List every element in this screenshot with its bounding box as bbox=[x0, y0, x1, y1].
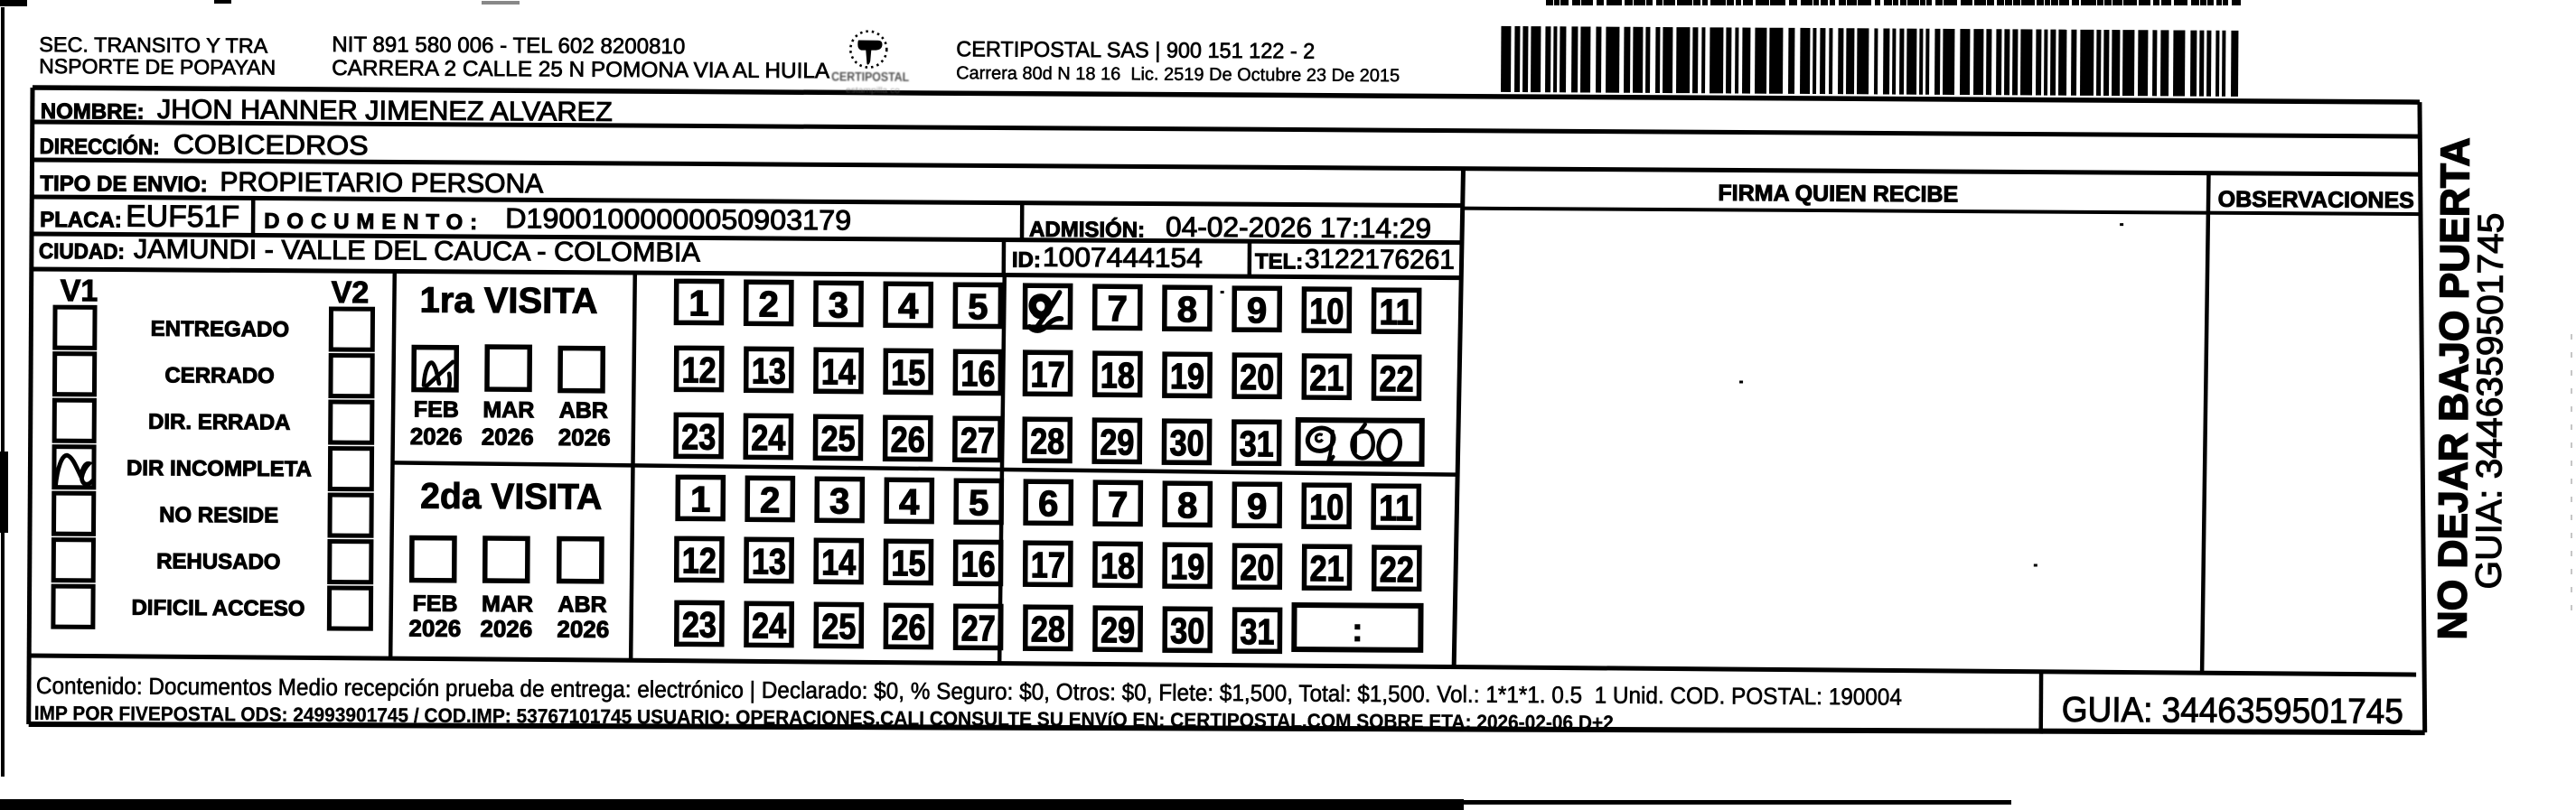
svg-text:8: 8 bbox=[1177, 290, 1198, 330]
svg-text:15: 15 bbox=[891, 353, 925, 393]
svg-text:2da VISITA: 2da VISITA bbox=[420, 477, 602, 517]
svg-text:2026: 2026 bbox=[480, 615, 532, 642]
svg-text:OBSERVACIONES: OBSERVACIONES bbox=[2218, 187, 2414, 213]
svg-text:D19001000000050903179: D19001000000050903179 bbox=[505, 202, 851, 236]
svg-text:V1: V1 bbox=[61, 274, 98, 308]
svg-text:10: 10 bbox=[1309, 488, 1344, 527]
svg-text:CIUDAD:: CIUDAD: bbox=[39, 239, 125, 265]
svg-text:7: 7 bbox=[1107, 289, 1128, 329]
svg-text:25: 25 bbox=[821, 607, 856, 647]
svg-text:2: 2 bbox=[760, 480, 781, 520]
svg-text:8: 8 bbox=[1177, 486, 1198, 526]
svg-text:MAR: MAR bbox=[482, 591, 533, 617]
svg-text:22: 22 bbox=[1380, 550, 1414, 590]
svg-text:2026: 2026 bbox=[557, 616, 609, 643]
svg-text:23: 23 bbox=[681, 417, 716, 457]
svg-text:9: 9 bbox=[1247, 291, 1268, 331]
svg-text:CERTIPOSTAL: CERTIPOSTAL bbox=[831, 69, 909, 84]
svg-text:ABR: ABR bbox=[557, 592, 606, 618]
svg-text:NSPORTE DE POPAYAN: NSPORTE DE POPAYAN bbox=[39, 54, 276, 79]
svg-text:CERTIPOSTAL SAS | 900 151 122: CERTIPOSTAL SAS | 900 151 122 - 2 bbox=[956, 37, 1315, 63]
svg-text:22: 22 bbox=[1379, 359, 1413, 399]
svg-text:19: 19 bbox=[1170, 547, 1204, 587]
svg-text:Carrera 80d N 18 16 Lic. 2519: Carrera 80d N 18 16 Lic. 2519 De Octubre… bbox=[956, 63, 1400, 86]
svg-text:29: 29 bbox=[1100, 423, 1134, 462]
svg-text:GUIA: 3446359501745: GUIA: 3446359501745 bbox=[2469, 212, 2512, 589]
svg-text:1: 1 bbox=[688, 284, 709, 323]
svg-text:NIT 891 580 006 - TEL 602 8200: NIT 891 580 006 - TEL 602 8200810 bbox=[332, 33, 685, 59]
svg-text:GUIA: 3446359501745: GUIA: 3446359501745 bbox=[2062, 691, 2403, 731]
svg-text:PROPIETARIO PERSONA: PROPIETARIO PERSONA bbox=[220, 167, 543, 199]
svg-text:31: 31 bbox=[1240, 424, 1274, 464]
svg-text:2026: 2026 bbox=[482, 424, 534, 451]
svg-text:JHON HANNER JIMENEZ ALVAREZ: JHON HANNER JIMENEZ ALVAREZ bbox=[157, 95, 613, 127]
svg-text:CARRERA 2 CALLE 25 N POMONA VI: CARRERA 2 CALLE 25 N POMONA VIA AL HUILA bbox=[332, 56, 829, 83]
svg-text:FIRMA QUIEN RECIBE: FIRMA QUIEN RECIBE bbox=[1718, 181, 1958, 208]
svg-text:16: 16 bbox=[960, 354, 995, 394]
svg-text:4: 4 bbox=[898, 286, 919, 326]
svg-text:11: 11 bbox=[1379, 293, 1413, 332]
svg-text:2026: 2026 bbox=[558, 424, 611, 451]
svg-text:25: 25 bbox=[820, 419, 855, 459]
svg-text:EUF51F: EUF51F bbox=[126, 200, 239, 235]
svg-text:2: 2 bbox=[759, 284, 780, 324]
svg-text:REHUSADO: REHUSADO bbox=[156, 549, 281, 574]
svg-text:1ra VISITA: 1ra VISITA bbox=[419, 281, 597, 321]
svg-text:5: 5 bbox=[968, 287, 988, 327]
svg-text:13: 13 bbox=[752, 542, 786, 582]
svg-text:20: 20 bbox=[1240, 548, 1274, 588]
svg-text:JAMUNDI - VALLE DEL CAUCA - CO: JAMUNDI - VALLE DEL CAUCA - COLOMBIA bbox=[134, 235, 700, 268]
svg-text:14: 14 bbox=[821, 543, 857, 582]
svg-text:2026: 2026 bbox=[408, 615, 461, 642]
svg-text:CERRADO: CERRADO bbox=[164, 363, 275, 388]
svg-text:18: 18 bbox=[1101, 546, 1135, 586]
svg-text:11: 11 bbox=[1379, 489, 1413, 528]
svg-text:DIFICIL ACCESO: DIFICIL ACCESO bbox=[131, 596, 304, 621]
svg-text:12: 12 bbox=[682, 541, 717, 581]
svg-text:PLACA:: PLACA: bbox=[40, 208, 122, 233]
svg-text:04-02-2026 17:14:29: 04-02-2026 17:14:29 bbox=[1166, 211, 1431, 245]
svg-text:30: 30 bbox=[1170, 611, 1204, 651]
svg-text:27: 27 bbox=[961, 609, 996, 648]
svg-text:30: 30 bbox=[1169, 424, 1204, 463]
svg-text:TIPO DE ENVIO:: TIPO DE ENVIO: bbox=[40, 172, 208, 197]
svg-text:NOMBRE:: NOMBRE: bbox=[41, 99, 145, 125]
svg-text:ADMISIÓN:: ADMISIÓN: bbox=[1029, 217, 1145, 243]
svg-text:DIR. ERRADA: DIR. ERRADA bbox=[148, 410, 291, 435]
svg-text:4: 4 bbox=[899, 482, 920, 522]
svg-text:ABR: ABR bbox=[559, 398, 608, 424]
svg-text:15: 15 bbox=[891, 544, 925, 583]
svg-text:13: 13 bbox=[752, 351, 786, 391]
svg-text:28: 28 bbox=[1031, 610, 1065, 649]
svg-text:3: 3 bbox=[829, 285, 849, 325]
svg-text:1007444154: 1007444154 bbox=[1043, 243, 1203, 274]
svg-text:6: 6 bbox=[1038, 484, 1059, 524]
svg-text:MAR: MAR bbox=[482, 397, 534, 423]
svg-text:29: 29 bbox=[1101, 610, 1135, 650]
svg-text:31: 31 bbox=[1240, 612, 1274, 652]
svg-text:24: 24 bbox=[751, 418, 786, 458]
svg-text:26: 26 bbox=[891, 420, 925, 460]
svg-text:14: 14 bbox=[821, 352, 857, 392]
svg-text:TEL:: TEL: bbox=[1255, 249, 1303, 274]
svg-text:17: 17 bbox=[1031, 545, 1065, 585]
svg-text:ID:: ID: bbox=[1012, 248, 1041, 273]
svg-text:5: 5 bbox=[969, 483, 989, 523]
svg-text:10: 10 bbox=[1309, 292, 1344, 331]
svg-text:FEB: FEB bbox=[412, 591, 457, 617]
svg-text:2026: 2026 bbox=[410, 423, 463, 450]
svg-text:DOCUMENTO:: DOCUMENTO: bbox=[264, 209, 477, 235]
svg-text:3122176261: 3122176261 bbox=[1305, 245, 1455, 275]
svg-text:21: 21 bbox=[1309, 358, 1344, 398]
svg-text:16: 16 bbox=[960, 545, 995, 584]
svg-text:12: 12 bbox=[681, 350, 716, 390]
svg-text:17: 17 bbox=[1030, 355, 1064, 395]
svg-text:19: 19 bbox=[1170, 357, 1204, 396]
svg-text:18: 18 bbox=[1101, 356, 1135, 396]
svg-text:27: 27 bbox=[960, 421, 995, 461]
svg-text:DIR INCOMPLETA: DIR INCOMPLETA bbox=[126, 456, 312, 481]
svg-text:26: 26 bbox=[891, 608, 925, 647]
svg-text:1: 1 bbox=[690, 479, 711, 519]
svg-text:estampilla co: estampilla co bbox=[846, 85, 900, 94]
svg-text:21: 21 bbox=[1309, 549, 1344, 589]
svg-text:ENTREGADO: ENTREGADO bbox=[151, 317, 290, 342]
svg-text:9: 9 bbox=[1247, 487, 1268, 526]
svg-text:28: 28 bbox=[1030, 422, 1064, 461]
svg-text:V2: V2 bbox=[332, 275, 370, 310]
svg-text:24: 24 bbox=[752, 606, 787, 646]
svg-text:23: 23 bbox=[682, 605, 717, 645]
svg-text:NO RESIDE: NO RESIDE bbox=[159, 503, 278, 528]
svg-text::: : bbox=[1352, 611, 1363, 648]
svg-text:COBICEDROS: COBICEDROS bbox=[173, 130, 369, 161]
svg-text:DIRECCIÓN:: DIRECCIÓN: bbox=[40, 134, 160, 160]
svg-text:3: 3 bbox=[829, 481, 850, 521]
svg-text:7: 7 bbox=[1108, 485, 1129, 525]
svg-text:20: 20 bbox=[1240, 358, 1274, 397]
svg-text:FEB: FEB bbox=[414, 397, 459, 423]
